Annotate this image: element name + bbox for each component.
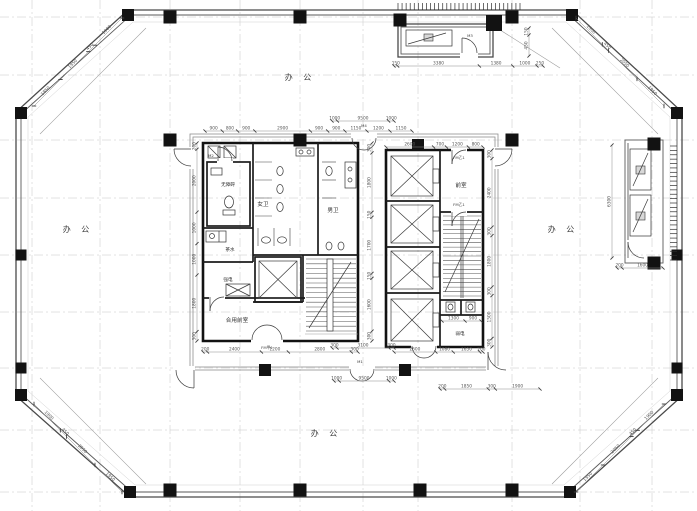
dim-value: 1000 [331, 376, 342, 382]
left-stairs [305, 259, 358, 334]
dim-value: 300 [487, 150, 493, 158]
dim-value: 200 [615, 263, 623, 269]
dim-value: 2600 [409, 347, 420, 353]
dim-value: 9500 [358, 116, 369, 122]
toilet-icon [262, 237, 271, 243]
dim-value: 1650 [461, 347, 472, 353]
exterior-wall-part [21, 15, 677, 492]
door-tag-m2: M2 [208, 153, 214, 158]
dim-corridor-mid: 300160015017001501800300 [367, 141, 374, 342]
dim-value: 1080 [439, 347, 450, 353]
columns-part [486, 15, 502, 31]
urinal-icon [326, 242, 332, 250]
dim-value: 3380 [433, 61, 444, 67]
corridor-partition-ring-part [190, 134, 498, 370]
toilet-icon [225, 196, 234, 208]
dim-value: 800 [472, 142, 480, 148]
dim-value: 2400 [229, 347, 240, 353]
dim-value: 1950 [582, 471, 594, 483]
exterior-wall-part [40, 28, 146, 134]
dim-value: 2000 [192, 175, 198, 186]
door-tag-m4: M4 [361, 123, 367, 128]
dim-value: 300 [487, 227, 493, 235]
left-core-part [348, 178, 352, 182]
dim-top-room: 150338013801000250 [392, 61, 545, 68]
columns-part [399, 364, 411, 376]
dim-value: 2050 [76, 443, 88, 455]
dim-value: 150 [524, 27, 530, 35]
door-tag-fm-yi1-top: FM乙1 [453, 155, 465, 160]
left-core-part [348, 167, 352, 171]
columns-part [15, 107, 27, 119]
dim-value: 900 [210, 126, 218, 132]
columns-part [294, 11, 307, 24]
dim-value: 1500 [487, 311, 493, 322]
dim-value: 450 [628, 427, 638, 437]
columns-part [506, 134, 519, 147]
exterior-wall-part [552, 378, 658, 484]
corridor-partition-ring-part [193, 137, 495, 367]
dim-value: 1150 [396, 126, 407, 132]
dim-value: 1850 [40, 85, 52, 97]
columns-part [164, 134, 177, 147]
dim-value: 900 [315, 126, 323, 132]
left-core-part [307, 150, 311, 154]
dim-value: 1000 [329, 116, 340, 122]
shared-lobby-label: 合用前室 [226, 316, 249, 324]
columns-part [672, 363, 683, 374]
dim-value: 1900 [512, 384, 523, 390]
left-core-part [210, 234, 215, 239]
women-wc-label: 女卫 [257, 200, 269, 208]
office-label-left: 办 公 [63, 224, 94, 234]
dim-value: 250 [536, 61, 544, 67]
dim-value: 450 [602, 41, 612, 51]
dim-value: 1000 [192, 222, 198, 233]
columns [15, 9, 683, 498]
dim-value: 1600 [367, 299, 373, 310]
dim-value: 800 [226, 126, 234, 132]
door-openings-part [460, 53, 478, 59]
right-core-part [468, 304, 473, 310]
columns-part [294, 134, 307, 147]
dim-value: 9500 [359, 376, 370, 382]
office-label-top: 办 公 [285, 72, 316, 82]
exterior-wall-part [28, 22, 670, 485]
right-wall-hatch [670, 146, 677, 260]
dim-value: 1800 [192, 298, 198, 309]
dim-value: 150 [367, 210, 373, 218]
dim-value: 150 [392, 61, 400, 67]
columns-part [16, 250, 27, 261]
dim-value: 1900 [43, 410, 55, 422]
dim-weak-room: 1300900 [440, 316, 482, 323]
dim-bottom-right: 20018503001900 [438, 384, 541, 391]
columns-part [648, 138, 661, 151]
urinal-icon [338, 242, 344, 250]
columns-part [506, 11, 519, 24]
dim-value: 450 [524, 41, 530, 49]
dim-value: 1850 [461, 384, 472, 390]
dim-value: 200 [438, 384, 446, 390]
exterior-wall-part [16, 10, 682, 497]
dim-value: 1300 [448, 316, 459, 322]
floor-plan-drawing: 150338013801000250 450150 100095001000 9… [0, 0, 697, 511]
dim-value: 200 [201, 347, 209, 353]
door-swings [174, 38, 644, 388]
floor-plan-canvas: 150338013801000250 450150 100095001000 9… [0, 0, 697, 511]
dim-value: 300 [330, 343, 338, 349]
dim-value: 300 [487, 287, 493, 295]
dim-bottom-corridor: 100095001000 [331, 376, 397, 383]
door-openings-part [209, 294, 225, 302]
dim-value: 450 [85, 42, 95, 52]
dim-diag-tl: 185019504501900 [32, 18, 124, 106]
dim-diag-tr: 190045020501950 [576, 16, 664, 108]
dim-value: 1600 [637, 263, 648, 269]
dim-value: 300 [367, 332, 373, 340]
dim-value: 1200 [373, 126, 384, 132]
left-core [203, 143, 358, 341]
door-openings [173, 53, 631, 375]
dim-value: 1800 [367, 177, 373, 188]
dim-value: 900 [332, 126, 340, 132]
dim-corridor-top: 100095001000 [329, 116, 397, 123]
dim-value: 1000 [386, 116, 397, 122]
door-tag-m3: M3 [467, 33, 473, 38]
dim-value: 200 [192, 142, 198, 150]
dim-value: 300 [387, 343, 395, 349]
elevator-bank-part [433, 313, 439, 327]
left-core-part [223, 210, 235, 215]
dim-value: 700 [436, 142, 444, 148]
dim-value: 200 [477, 347, 485, 353]
dim-right-shaft-v: 6300 [607, 143, 614, 259]
columns-part [414, 484, 427, 497]
toilet-icon [277, 185, 283, 194]
dim-value: 1150 [350, 126, 361, 132]
left-core-part [299, 150, 303, 154]
dim-value: 1000 [386, 376, 397, 382]
columns-part [16, 363, 27, 374]
toilet-icon [278, 237, 287, 243]
dim-value: 1900 [585, 24, 597, 36]
elevator-bank-part [433, 217, 439, 231]
strong-electric-label: 强电 [223, 276, 233, 283]
dim-top-room-v: 450150 [524, 26, 531, 57]
columns-part [164, 484, 177, 497]
top-wall-hatch [398, 3, 520, 10]
pantry-sink [206, 231, 226, 242]
women-wc-stalls-2 [258, 228, 290, 246]
dim-value: 900 [469, 316, 477, 322]
weak-electric-label: 弱电 [455, 330, 465, 337]
right-stairs-part [445, 219, 479, 292]
sink-counter [345, 162, 356, 188]
columns-part [648, 257, 661, 270]
exterior-wall [16, 10, 682, 497]
dim-value: 1380 [491, 61, 502, 67]
pantry-label: 茶水 [225, 246, 235, 253]
columns-part [164, 11, 177, 24]
left-elevator [255, 257, 301, 302]
dim-value: 300 [192, 332, 198, 340]
dim-value: 2400 [487, 187, 493, 198]
office-label-right: 办 公 [548, 224, 579, 234]
columns-part [506, 484, 519, 497]
dim-value: 6300 [607, 196, 613, 207]
columns-part [15, 389, 27, 401]
door-tag-fm-jia1: FM甲1 [261, 345, 273, 350]
dim-value: 2900 [277, 126, 288, 132]
elevator-bank-part [433, 169, 439, 183]
dim-right-core-right: 300150030018003002400300 [487, 148, 494, 348]
columns-part [124, 486, 136, 498]
elevator-bank [391, 156, 439, 341]
columns-part [671, 107, 683, 119]
toilet-icon [277, 203, 283, 212]
door-swings-part [462, 38, 477, 53]
door-openings-part [349, 366, 375, 375]
dim-right-core-top: 26007001200800 [384, 142, 484, 149]
dim-value: 300 [487, 338, 493, 346]
accessible-wc-label: 无障碍 [221, 181, 235, 188]
columns-part [671, 389, 683, 401]
columns-part [394, 14, 407, 27]
lobby-label: 前室 [455, 181, 467, 189]
dim-value: 900 [242, 126, 250, 132]
door-tag-m1: M1 [357, 359, 363, 364]
right-core-part [448, 304, 453, 310]
toilet-icon [326, 167, 332, 176]
dim-value: 2800 [314, 347, 325, 353]
door-tag-fm-yi1-mid: FM乙1 [453, 202, 465, 207]
toilet-icon [277, 167, 283, 176]
dim-value: 1800 [487, 256, 493, 267]
dim-left-core-top: 9008009002900900900115012001150 [203, 126, 413, 133]
columns-part [294, 484, 307, 497]
door-openings-part [251, 337, 283, 345]
columns-part [122, 9, 134, 21]
dim-value: 450 [60, 427, 70, 437]
dim-value: 300 [367, 144, 373, 152]
dim-value: 300 [488, 384, 496, 390]
dim-value: 2600 [404, 142, 415, 148]
corridor-partition-ring [190, 134, 498, 370]
dim-value: 1700 [367, 240, 373, 251]
dim-value: 3100 [358, 343, 369, 349]
door-openings-part [217, 158, 233, 165]
dim-value: 1000 [192, 254, 198, 265]
right-stairs [443, 214, 481, 298]
men-wc-label: 男卫 [327, 207, 339, 214]
elevator-bank-part [433, 263, 439, 277]
left-core-part [211, 168, 222, 175]
columns-part [259, 364, 271, 376]
dim-value: 150 [367, 271, 373, 279]
dim-value: 1200 [452, 142, 463, 148]
dim-value: 1000 [519, 61, 530, 67]
office-label-bottom: 办 公 [311, 428, 342, 438]
